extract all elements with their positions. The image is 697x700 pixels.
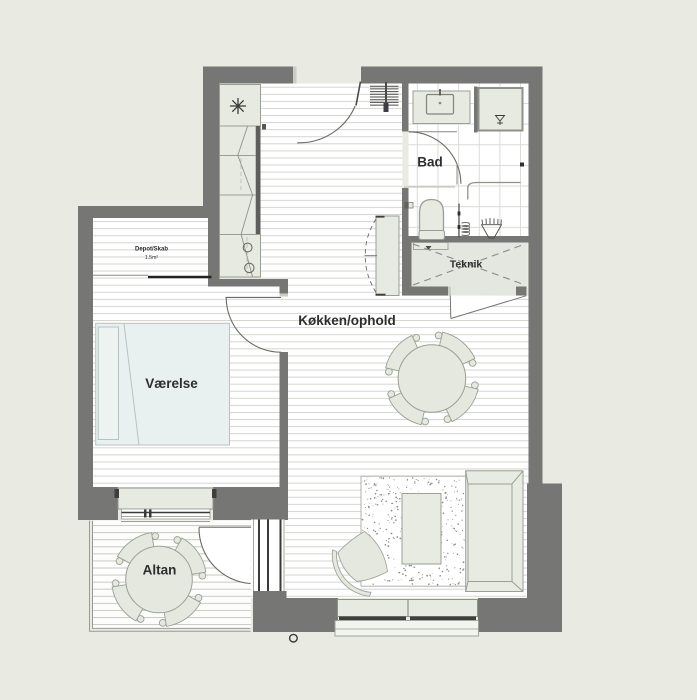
- svg-text:1.5m²: 1.5m²: [145, 255, 159, 261]
- svg-text:Værelse: Værelse: [145, 376, 198, 391]
- svg-text:Teknik: Teknik: [450, 259, 483, 271]
- svg-text:Altan: Altan: [143, 563, 177, 578]
- svg-text:Depot/Skab: Depot/Skab: [135, 247, 168, 253]
- svg-text:Bad: Bad: [417, 155, 443, 170]
- svg-text:Køkken/ophold: Køkken/ophold: [298, 313, 396, 328]
